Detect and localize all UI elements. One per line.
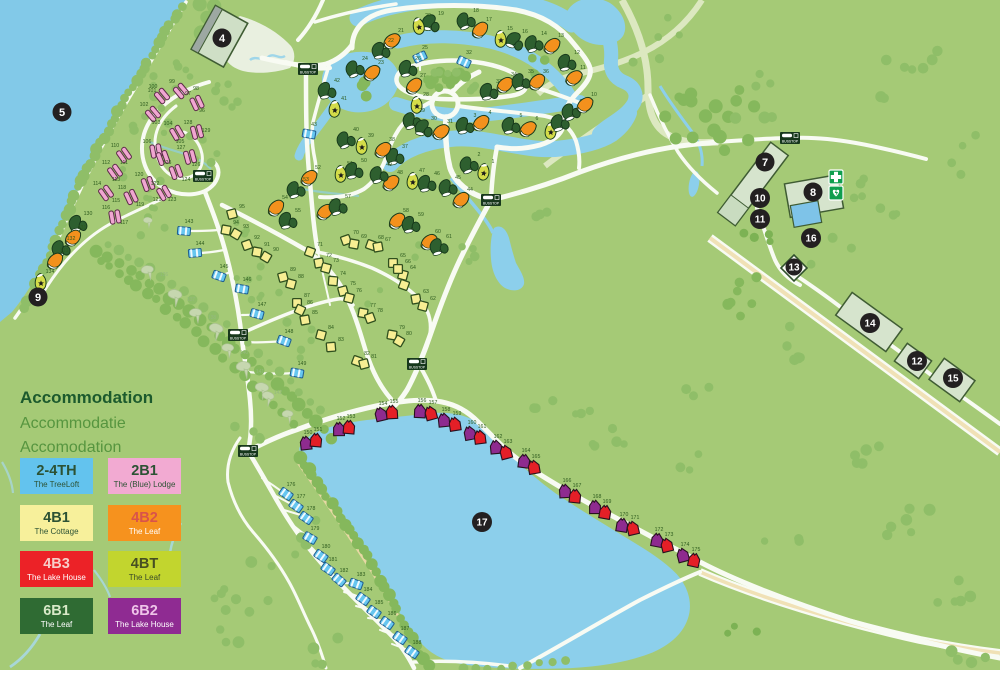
svg-text:171: 171 xyxy=(631,515,640,521)
svg-text:148: 148 xyxy=(285,329,294,335)
svg-text:87: 87 xyxy=(304,293,310,299)
svg-text:119: 119 xyxy=(136,202,144,208)
svg-text:20: 20 xyxy=(425,13,431,19)
svg-text:121: 121 xyxy=(153,197,162,203)
svg-text:98: 98 xyxy=(193,86,199,92)
svg-text:49: 49 xyxy=(386,162,392,168)
svg-text:86: 86 xyxy=(307,300,313,306)
svg-text:70: 70 xyxy=(353,230,359,236)
svg-text:28: 28 xyxy=(423,92,429,98)
svg-text:163: 163 xyxy=(504,439,513,445)
svg-text:173: 173 xyxy=(665,532,674,538)
svg-text:37: 37 xyxy=(402,144,408,150)
svg-text:61: 61 xyxy=(446,234,452,240)
svg-text:177: 177 xyxy=(297,494,306,500)
svg-text:The TreeLoft: The TreeLoft xyxy=(34,480,80,489)
svg-text:128: 128 xyxy=(184,120,193,126)
svg-text:180: 180 xyxy=(322,544,331,550)
svg-text:160: 160 xyxy=(468,420,477,426)
svg-text:157: 157 xyxy=(429,400,438,406)
svg-text:Accommodatie: Accommodatie xyxy=(20,415,126,432)
svg-text:The Lake House: The Lake House xyxy=(115,620,174,629)
svg-text:174: 174 xyxy=(681,542,690,548)
svg-text:4BT: 4BT xyxy=(131,556,159,572)
svg-text:188: 188 xyxy=(413,640,422,646)
svg-text:79: 79 xyxy=(399,325,405,331)
svg-text:89: 89 xyxy=(290,267,296,273)
svg-text:73: 73 xyxy=(333,258,339,264)
svg-text:166: 166 xyxy=(563,478,572,484)
svg-text:17: 17 xyxy=(476,518,488,529)
svg-text:62: 62 xyxy=(430,296,436,302)
svg-text:57: 57 xyxy=(345,194,351,200)
svg-text:16: 16 xyxy=(805,234,817,245)
svg-text:BUSSTOP: BUSSTOP xyxy=(240,452,257,456)
svg-text:99: 99 xyxy=(169,79,175,85)
svg-text:72: 72 xyxy=(326,253,332,259)
svg-text:31: 31 xyxy=(447,119,453,125)
svg-text:152: 152 xyxy=(337,416,346,422)
svg-text:176: 176 xyxy=(287,482,296,488)
svg-text:172: 172 xyxy=(655,527,664,533)
svg-text:10: 10 xyxy=(754,194,766,205)
svg-text:4: 4 xyxy=(219,33,226,45)
svg-text:95: 95 xyxy=(239,204,245,210)
svg-text:Accommodation: Accommodation xyxy=(20,388,153,407)
svg-text:140: 140 xyxy=(240,350,249,356)
svg-text:12: 12 xyxy=(574,50,580,56)
svg-text:112: 112 xyxy=(102,160,110,166)
svg-text:5: 5 xyxy=(520,113,523,119)
svg-text:78: 78 xyxy=(377,308,383,314)
svg-text:92: 92 xyxy=(254,235,260,241)
svg-text:39: 39 xyxy=(368,133,374,139)
svg-text:29: 29 xyxy=(419,108,425,114)
svg-text:165: 165 xyxy=(532,454,541,460)
svg-text:175: 175 xyxy=(692,547,701,553)
svg-text:47: 47 xyxy=(419,168,425,174)
svg-text:88: 88 xyxy=(298,274,304,280)
svg-text:43: 43 xyxy=(311,122,317,128)
svg-text:179: 179 xyxy=(311,526,320,532)
svg-text:6: 6 xyxy=(536,116,539,122)
svg-text:27: 27 xyxy=(420,73,426,79)
svg-text:2B1: 2B1 xyxy=(131,463,158,479)
svg-text:113: 113 xyxy=(112,177,120,183)
svg-text:149: 149 xyxy=(298,361,307,367)
svg-text:115: 115 xyxy=(112,198,120,204)
svg-text:BUSSTOP: BUSSTOP xyxy=(230,336,247,340)
svg-text:50: 50 xyxy=(361,158,367,164)
svg-text:132: 132 xyxy=(67,236,76,242)
svg-text:4B2: 4B2 xyxy=(131,510,158,526)
svg-text:114: 114 xyxy=(93,181,101,187)
svg-text:59: 59 xyxy=(418,212,424,218)
svg-text:2: 2 xyxy=(478,152,481,158)
svg-text:118: 118 xyxy=(118,185,126,191)
svg-text:18: 18 xyxy=(473,8,479,14)
svg-text:105: 105 xyxy=(176,139,185,145)
svg-text:64: 64 xyxy=(410,265,416,271)
svg-text:131: 131 xyxy=(78,225,87,231)
svg-text:137: 137 xyxy=(187,297,196,303)
svg-text:130: 130 xyxy=(84,211,93,217)
svg-text:4B3: 4B3 xyxy=(43,556,70,572)
svg-text:154: 154 xyxy=(379,401,388,407)
svg-text:123: 123 xyxy=(168,197,177,203)
svg-text:54: 54 xyxy=(282,195,288,201)
svg-text:52: 52 xyxy=(315,165,321,171)
svg-text:25: 25 xyxy=(422,45,428,51)
svg-text:26: 26 xyxy=(415,56,421,62)
svg-text:48: 48 xyxy=(397,170,403,176)
svg-text:136: 136 xyxy=(160,272,169,278)
svg-text:82: 82 xyxy=(364,351,370,357)
svg-text:84: 84 xyxy=(328,325,334,331)
svg-text:124: 124 xyxy=(182,177,191,183)
svg-text:3: 3 xyxy=(474,113,477,119)
svg-text:23: 23 xyxy=(378,60,384,66)
svg-text:BUSSTOP: BUSSTOP xyxy=(483,201,500,205)
svg-text:53: 53 xyxy=(303,177,309,183)
svg-text:158: 158 xyxy=(442,407,451,413)
svg-text:30: 30 xyxy=(431,116,437,122)
svg-text:BUSSTOP: BUSSTOP xyxy=(300,70,317,74)
svg-text:The (Blue) Lodge: The (Blue) Lodge xyxy=(114,480,176,489)
svg-text:187: 187 xyxy=(401,626,410,632)
svg-text:170: 170 xyxy=(620,512,629,518)
svg-text:14: 14 xyxy=(541,31,547,37)
svg-text:96: 96 xyxy=(199,108,205,114)
svg-text:150: 150 xyxy=(304,430,313,436)
svg-text:93: 93 xyxy=(243,224,249,230)
svg-text:159: 159 xyxy=(453,411,462,417)
svg-text:111: 111 xyxy=(120,160,128,166)
svg-text:103: 103 xyxy=(152,120,161,126)
svg-text:66: 66 xyxy=(405,259,411,265)
svg-text:102: 102 xyxy=(140,102,149,108)
svg-text:40: 40 xyxy=(353,127,359,133)
svg-text:36: 36 xyxy=(543,69,549,75)
svg-text:101: 101 xyxy=(148,88,157,94)
svg-text:110: 110 xyxy=(111,143,119,149)
svg-text:90: 90 xyxy=(273,247,279,253)
svg-text:5: 5 xyxy=(59,107,65,119)
svg-text:6B1: 6B1 xyxy=(43,603,70,619)
svg-text:16: 16 xyxy=(522,29,528,35)
svg-text:14: 14 xyxy=(864,319,876,330)
svg-text:BUSSTOP: BUSSTOP xyxy=(409,365,426,369)
svg-text:45: 45 xyxy=(455,175,461,181)
svg-text:44: 44 xyxy=(467,187,473,193)
svg-text:22: 22 xyxy=(388,38,394,44)
svg-text:164: 164 xyxy=(522,448,531,454)
svg-text:141: 141 xyxy=(256,369,265,375)
svg-text:134: 134 xyxy=(46,269,55,275)
svg-text:The Lake House: The Lake House xyxy=(27,573,86,582)
svg-text:186: 186 xyxy=(388,611,397,617)
svg-text:184: 184 xyxy=(364,587,373,593)
svg-text:32: 32 xyxy=(466,50,472,56)
svg-text:142: 142 xyxy=(274,390,283,396)
svg-text:13: 13 xyxy=(788,263,800,274)
svg-text:71: 71 xyxy=(317,242,323,248)
svg-text:182: 182 xyxy=(340,568,349,574)
svg-text:91: 91 xyxy=(264,242,270,248)
svg-text:42: 42 xyxy=(334,78,340,84)
svg-text:11: 11 xyxy=(580,65,585,71)
svg-text:185: 185 xyxy=(375,600,384,606)
svg-text:125: 125 xyxy=(163,160,172,166)
svg-text:69: 69 xyxy=(361,234,367,240)
svg-text:178: 178 xyxy=(307,506,316,512)
svg-text:BUSSTOP: BUSSTOP xyxy=(195,177,212,181)
svg-text:153: 153 xyxy=(347,414,356,420)
svg-text:156: 156 xyxy=(418,398,427,404)
svg-text:162: 162 xyxy=(494,434,503,440)
svg-text:1: 1 xyxy=(492,159,495,165)
svg-text:83: 83 xyxy=(338,337,344,343)
svg-text:80: 80 xyxy=(406,331,412,337)
svg-text:168: 168 xyxy=(593,494,602,500)
svg-text:183: 183 xyxy=(357,572,366,578)
svg-text:67: 67 xyxy=(385,237,391,243)
svg-text:120: 120 xyxy=(135,172,144,178)
svg-text:58: 58 xyxy=(403,208,409,214)
svg-text:81: 81 xyxy=(371,354,377,360)
svg-text:147: 147 xyxy=(258,302,267,308)
svg-text:The Leaf: The Leaf xyxy=(41,620,73,629)
svg-text:68: 68 xyxy=(378,235,384,241)
svg-text:4: 4 xyxy=(489,110,492,116)
svg-text:8: 8 xyxy=(810,187,816,199)
svg-text:41: 41 xyxy=(341,96,347,102)
svg-text:6B2: 6B2 xyxy=(131,603,158,619)
svg-text:97: 97 xyxy=(185,91,191,97)
svg-text:74: 74 xyxy=(340,271,346,277)
svg-text:63: 63 xyxy=(423,289,429,295)
svg-text:The Cottage: The Cottage xyxy=(34,527,79,536)
svg-text:24: 24 xyxy=(362,56,368,62)
svg-text:144: 144 xyxy=(196,241,205,247)
svg-text:104: 104 xyxy=(164,121,173,127)
svg-text:35: 35 xyxy=(528,69,534,75)
svg-text:94: 94 xyxy=(233,220,239,226)
svg-text:46: 46 xyxy=(434,171,440,177)
svg-text:161: 161 xyxy=(478,424,487,430)
svg-text:146: 146 xyxy=(243,277,252,283)
svg-text:60: 60 xyxy=(435,229,441,235)
svg-text:7: 7 xyxy=(762,157,768,169)
svg-text:167: 167 xyxy=(573,483,582,489)
svg-text:21: 21 xyxy=(398,28,404,34)
svg-text:13: 13 xyxy=(558,33,564,39)
svg-text:145: 145 xyxy=(220,264,229,270)
svg-text:9: 9 xyxy=(35,292,41,304)
svg-text:76: 76 xyxy=(356,288,362,294)
svg-text:15: 15 xyxy=(947,374,959,385)
svg-text:117: 117 xyxy=(120,220,128,226)
svg-text:Accomodation: Accomodation xyxy=(20,439,121,456)
svg-text:15: 15 xyxy=(507,26,513,32)
svg-text:19: 19 xyxy=(438,11,444,17)
svg-text:BUSSTOP: BUSSTOP xyxy=(782,139,799,143)
svg-text:The Leaf: The Leaf xyxy=(129,573,161,582)
svg-text:122: 122 xyxy=(151,181,160,187)
svg-text:151: 151 xyxy=(314,427,323,433)
svg-text:116: 116 xyxy=(102,205,110,211)
svg-text:12: 12 xyxy=(911,357,923,368)
svg-text:77: 77 xyxy=(370,303,376,309)
svg-text:143: 143 xyxy=(185,219,194,225)
svg-text:169: 169 xyxy=(603,499,612,505)
svg-text:38: 38 xyxy=(389,137,395,143)
svg-text:55: 55 xyxy=(295,208,301,214)
svg-text:75: 75 xyxy=(350,281,356,287)
svg-text:11: 11 xyxy=(755,215,766,226)
svg-text:51: 51 xyxy=(347,161,353,167)
svg-text:126: 126 xyxy=(192,162,201,168)
svg-text:133: 133 xyxy=(60,248,69,254)
svg-text:The Leaf: The Leaf xyxy=(129,527,161,536)
svg-text:129: 129 xyxy=(202,128,211,134)
svg-text:85: 85 xyxy=(312,310,318,316)
svg-text:138: 138 xyxy=(208,315,217,321)
svg-text:4B1: 4B1 xyxy=(43,510,70,526)
svg-text:17: 17 xyxy=(486,17,492,23)
svg-text:10: 10 xyxy=(591,92,597,98)
svg-text:155: 155 xyxy=(390,399,399,405)
svg-text:106: 106 xyxy=(143,139,152,145)
svg-text:2-4TH: 2-4TH xyxy=(36,463,76,479)
svg-text:127: 127 xyxy=(177,145,186,151)
svg-text:181: 181 xyxy=(329,557,338,563)
